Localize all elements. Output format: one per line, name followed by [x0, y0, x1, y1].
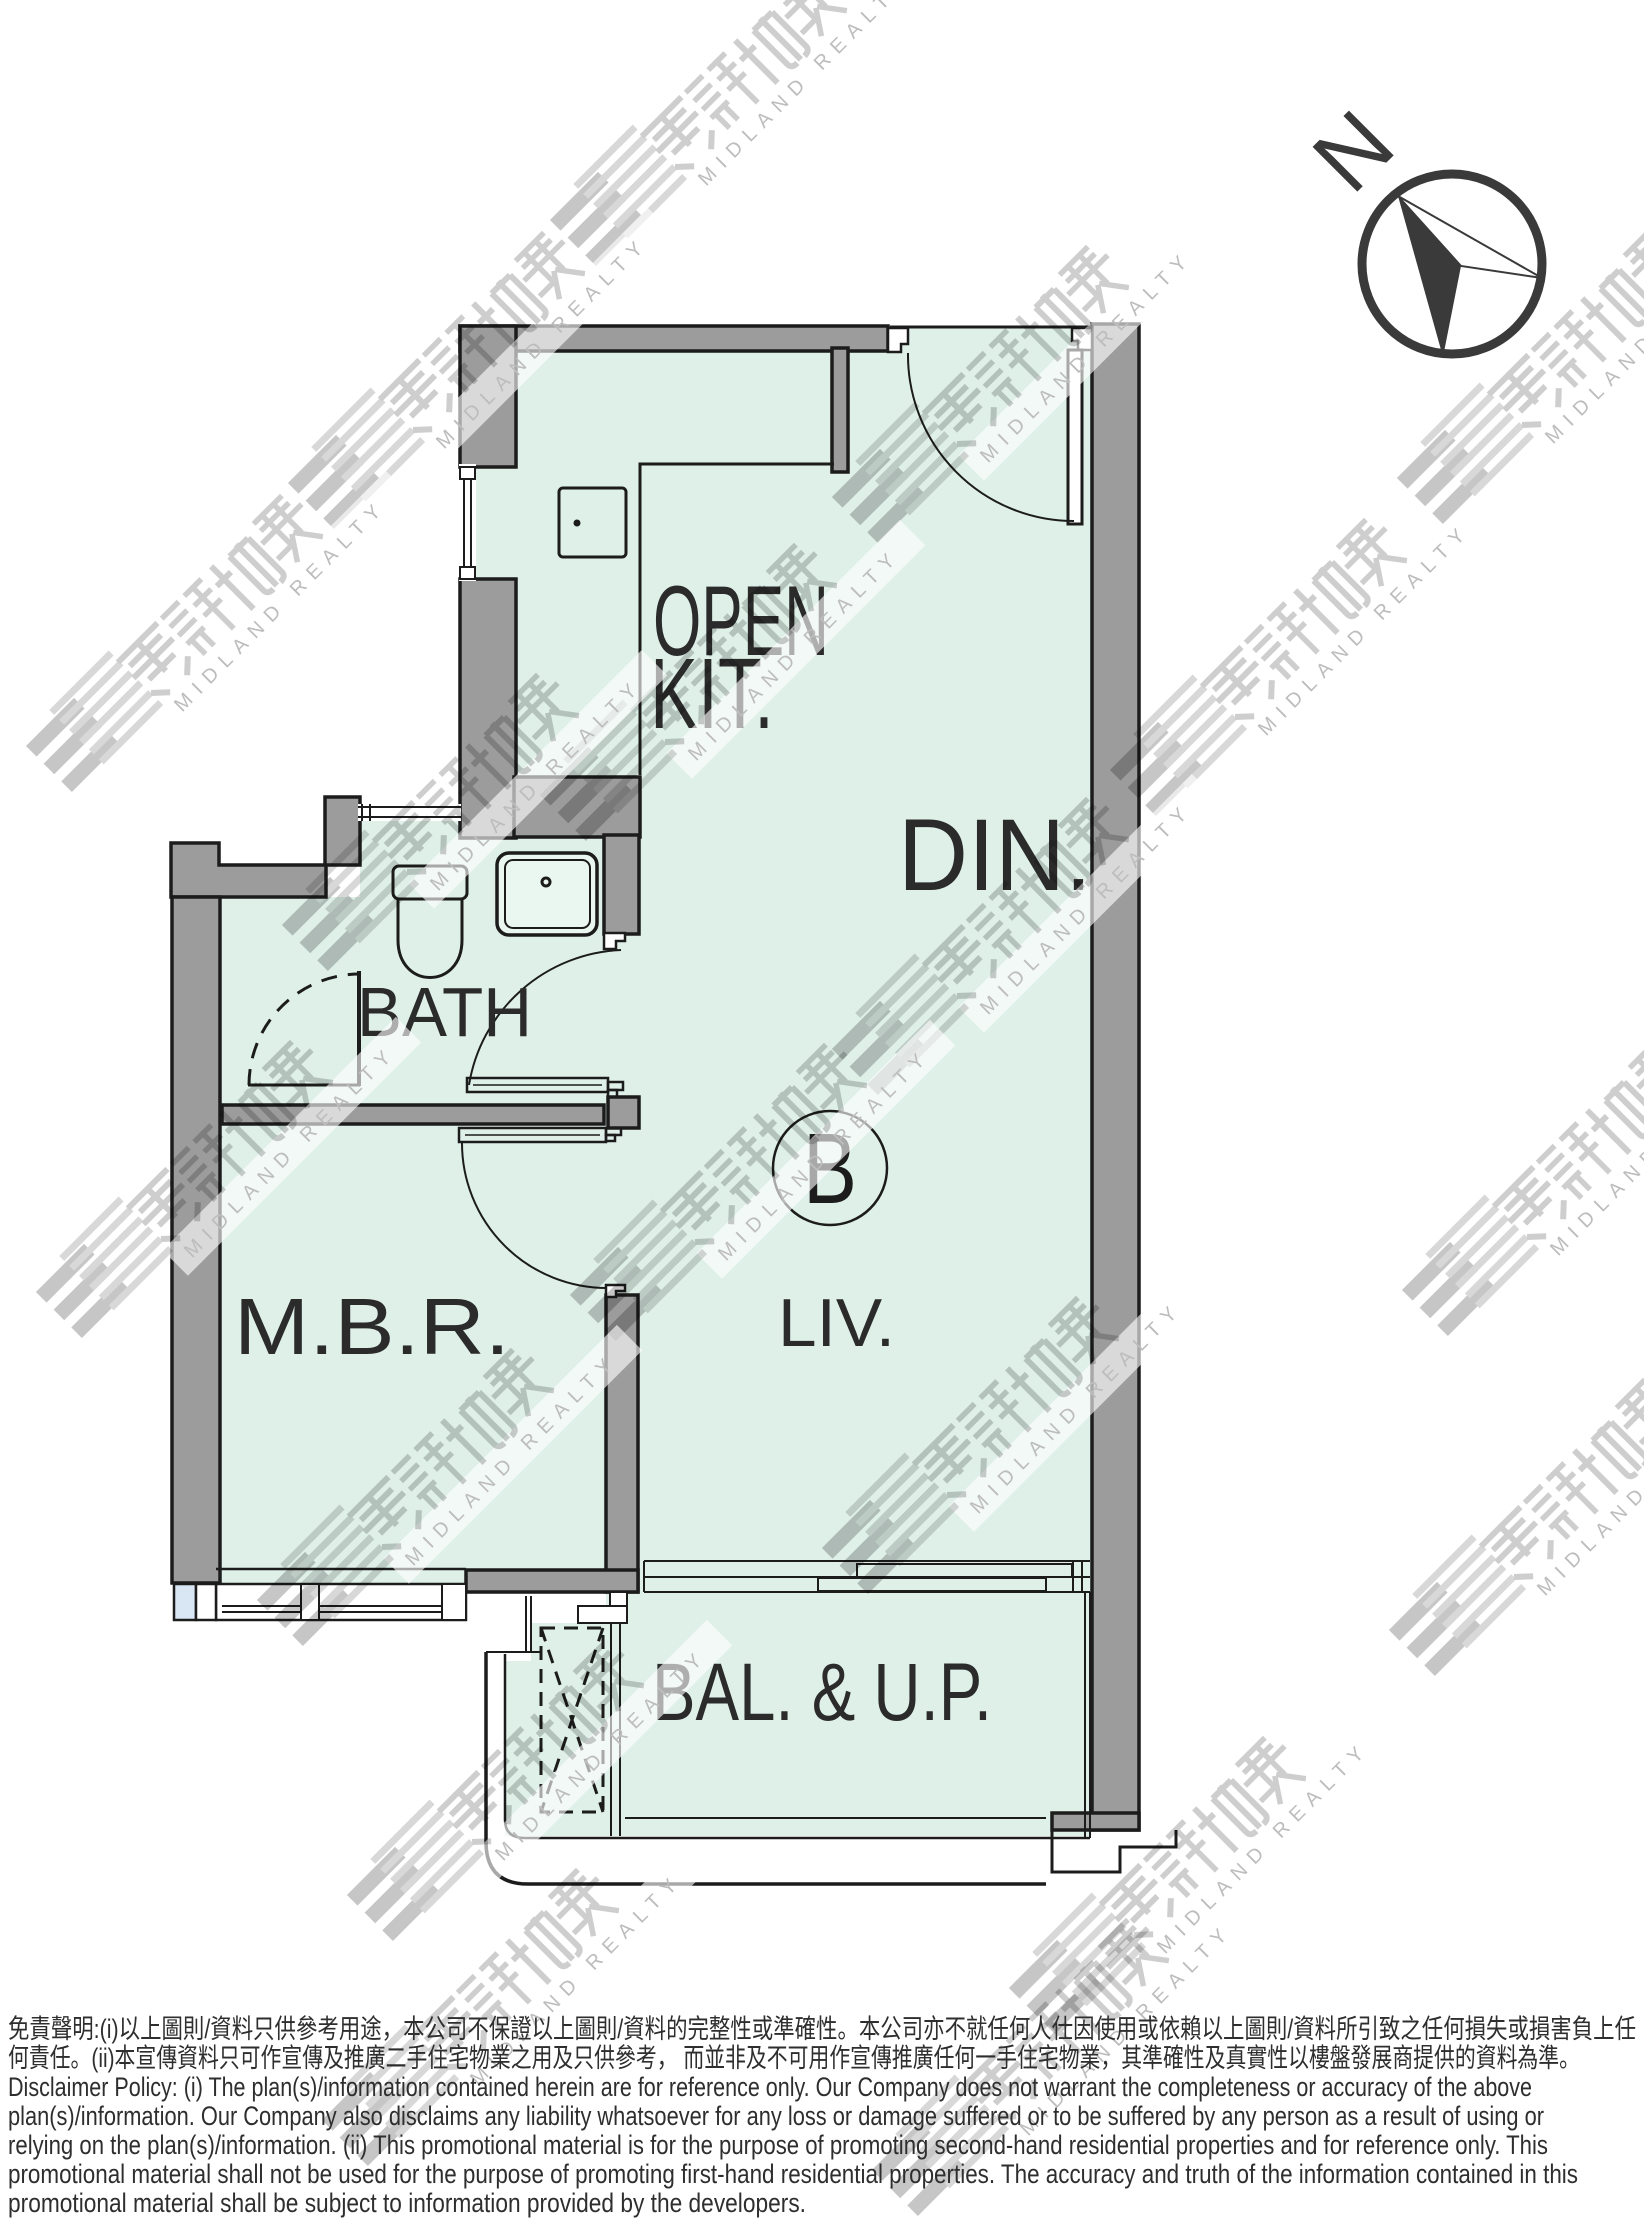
svg-text:plan(s)/information. Our Compa: plan(s)/information. Our Company also di…	[8, 2101, 1544, 2131]
svg-text:Disclaimer Policy: (i) The pla: Disclaimer Policy: (i) The plan(s)/infor…	[8, 2072, 1532, 2102]
svg-text:promotional material shall not: promotional material shall not be used f…	[8, 2159, 1578, 2189]
svg-text:免責聲明:(i)以上圖則/資料只供參考用途，本公司不保證以上: 免責聲明:(i)以上圖則/資料只供參考用途，本公司不保證以上圖則/資料的完整性或…	[8, 2014, 1636, 2044]
svg-text:M.B.R.: M.B.R.	[234, 1282, 510, 1371]
svg-text:何責任。(ii)本宣傳資料只可作宣傳及推廣二手住宅物業之用及: 何責任。(ii)本宣傳資料只可作宣傳及推廣二手住宅物業之用及只供參考， 而並非及…	[8, 2043, 1580, 2073]
svg-text:relying on the plan(s)/informa: relying on the plan(s)/information. (ii)…	[8, 2130, 1548, 2160]
svg-text:LIV.: LIV.	[778, 1285, 895, 1361]
svg-text:promotional material shall be: promotional material shall be subject to…	[8, 2188, 806, 2218]
